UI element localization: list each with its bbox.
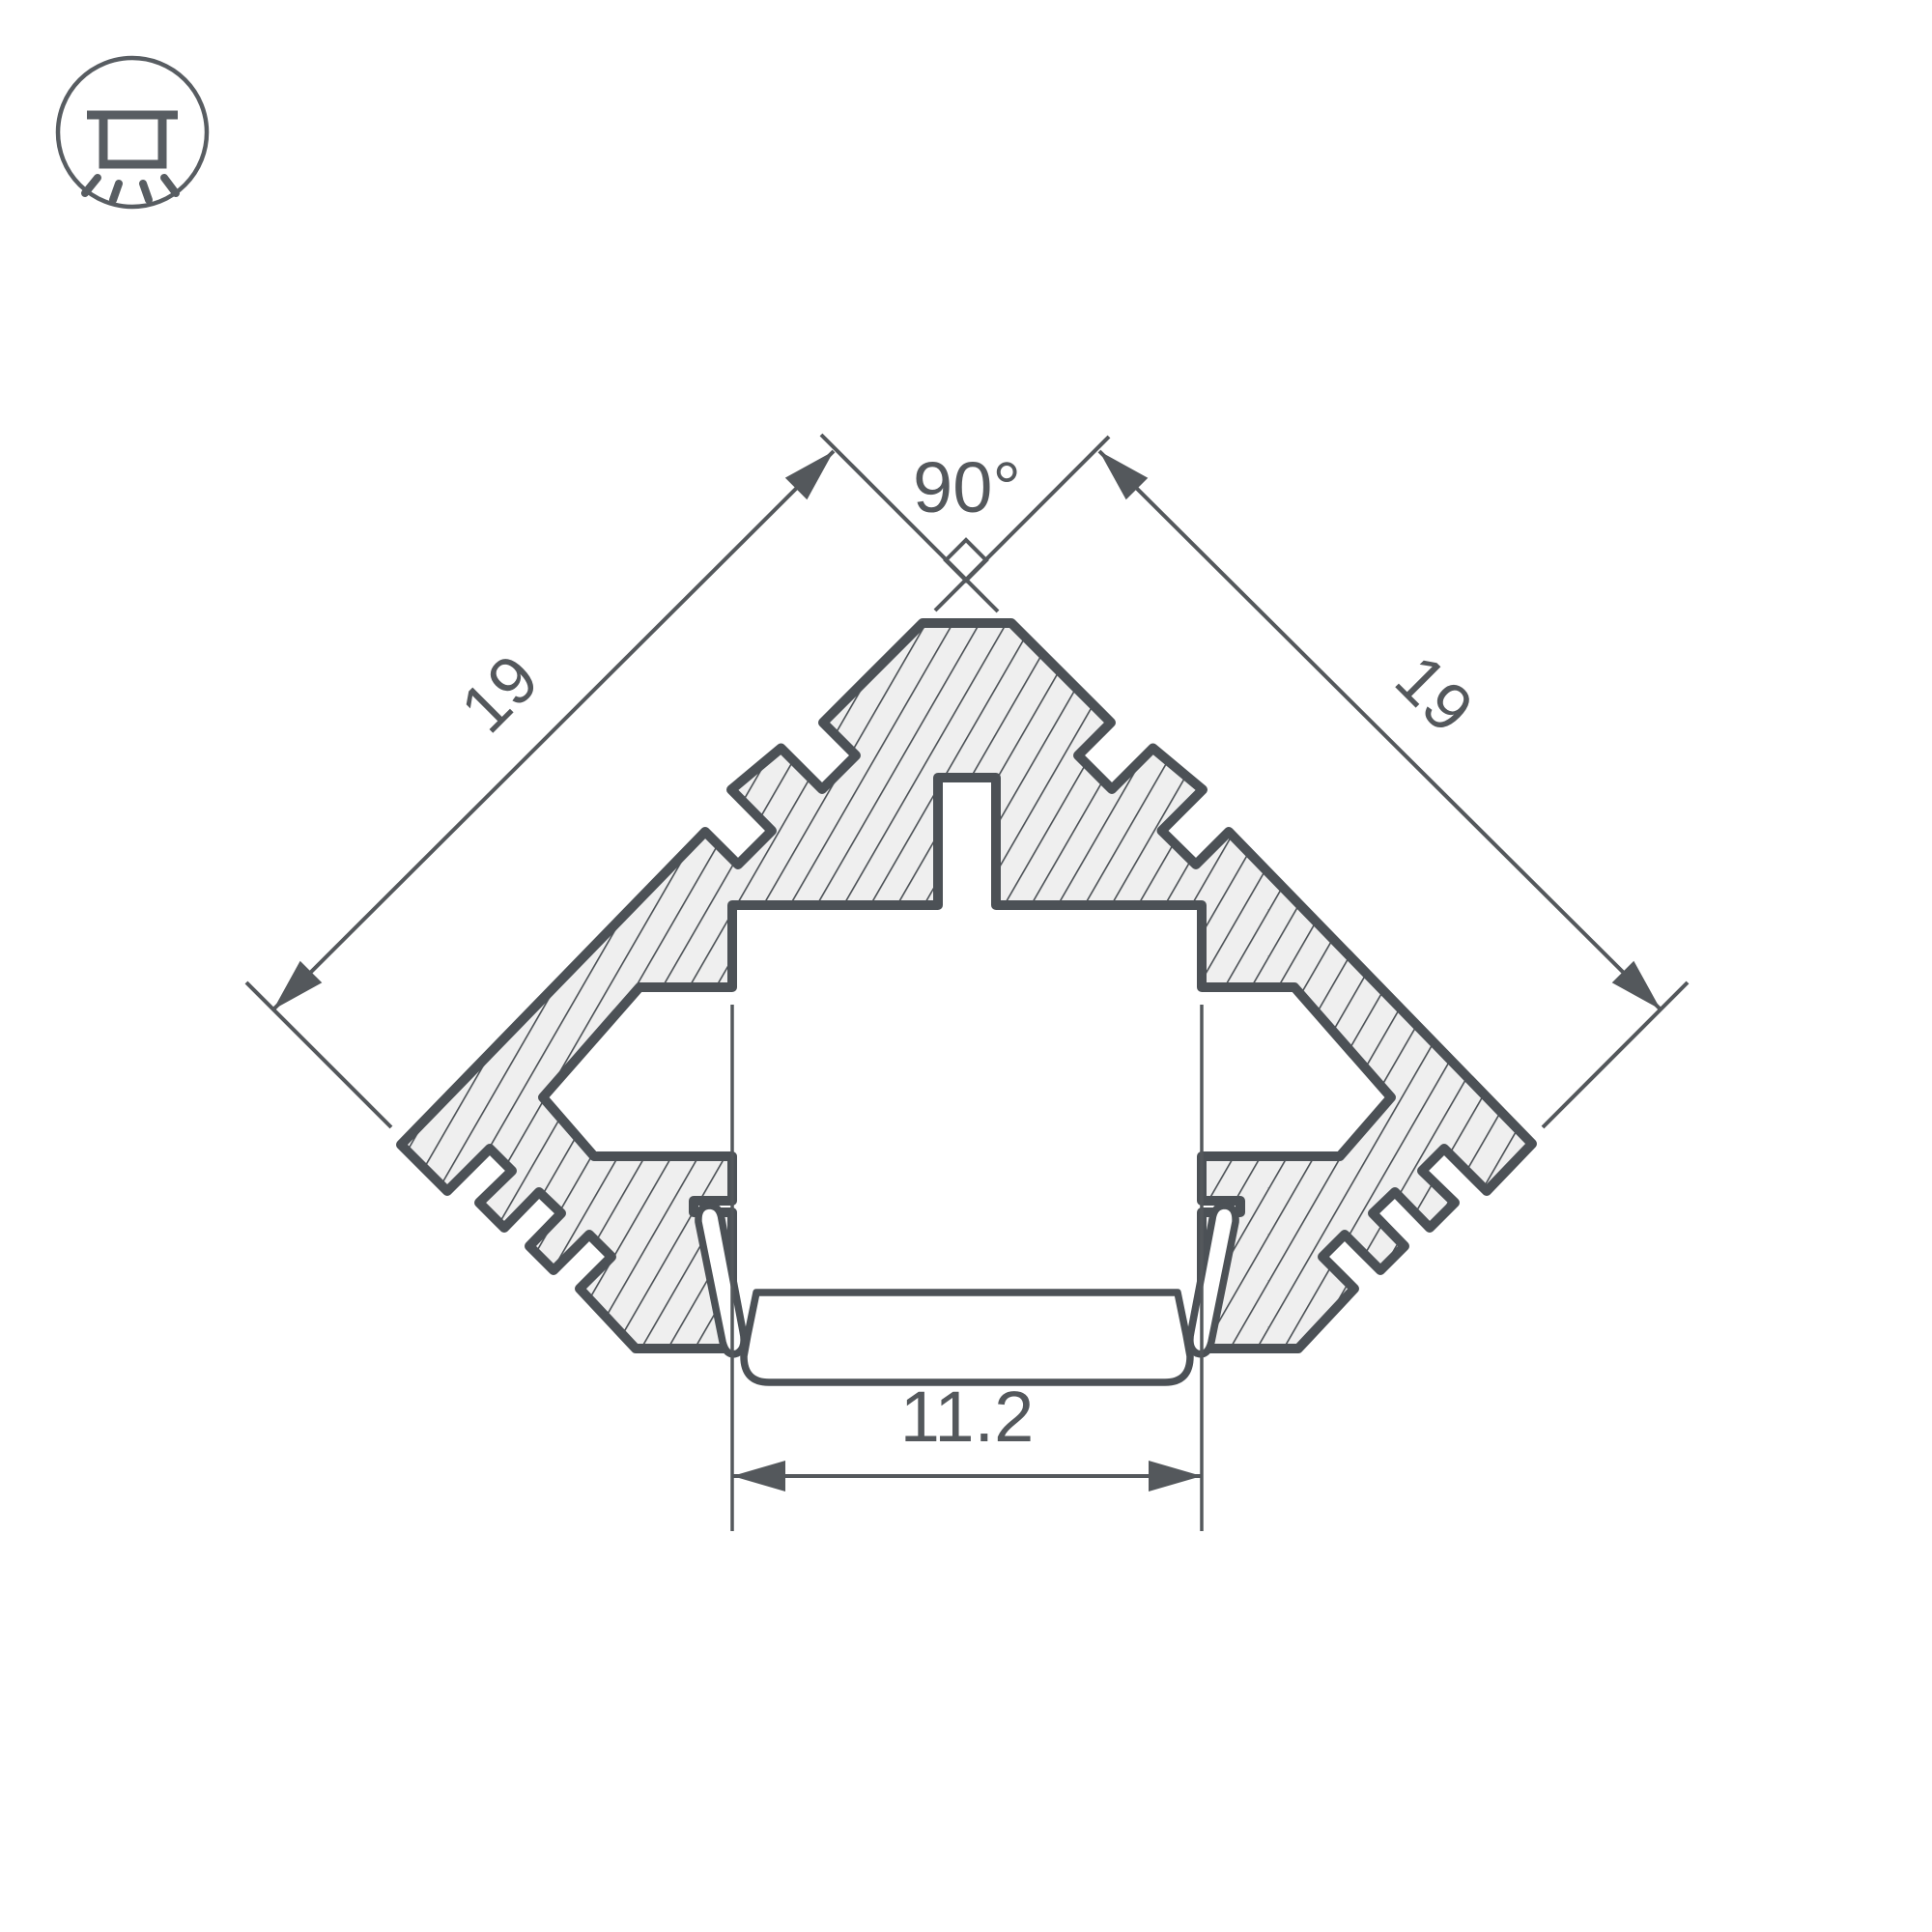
diffuser-plate xyxy=(744,1293,1190,1382)
profile-drawing: 90° 19 19 11.2 xyxy=(0,0,1932,1932)
technical-drawing-page: 90° 19 19 11.2 xyxy=(0,0,1932,1932)
dim-label-angle: 90° xyxy=(913,447,1021,527)
dim-label-width-bottom: 11.2 xyxy=(900,1377,1035,1457)
canvas-background xyxy=(0,0,1932,1932)
